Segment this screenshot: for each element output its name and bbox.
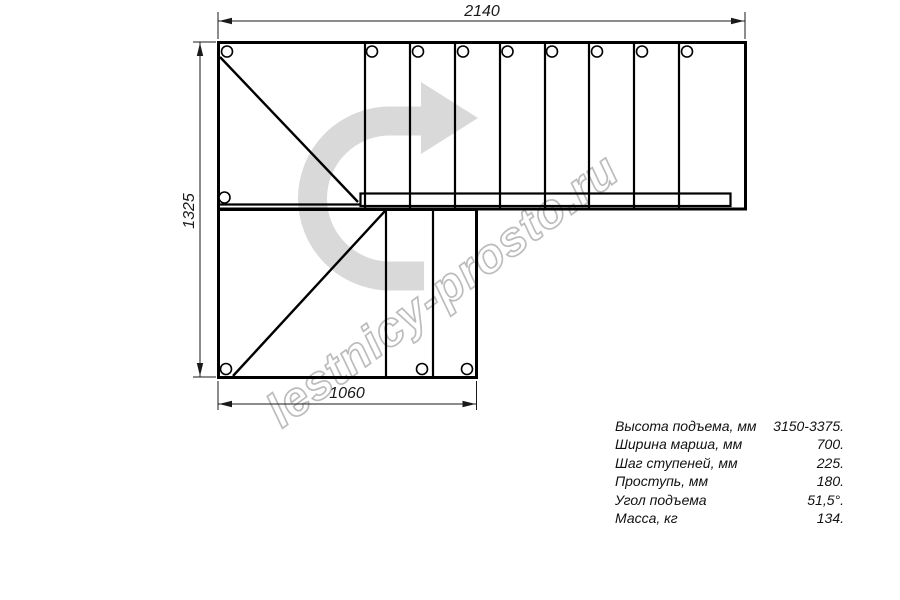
dimension-value-left: 1325 (181, 193, 198, 229)
spec-value: 700. (817, 435, 844, 453)
mounting-hole (222, 46, 233, 57)
arrow-head (421, 82, 478, 154)
arrow-curve (313, 121, 425, 276)
dim-arrowhead (197, 43, 203, 56)
mounting-hole (221, 364, 232, 375)
top-flight-outline (219, 43, 746, 210)
dim-arrowhead (197, 363, 203, 376)
stair-linework (219, 43, 746, 378)
mounting-hole (637, 46, 648, 57)
spec-row-tread: Проступь, мм 180. (615, 472, 844, 490)
mounting-hole (547, 46, 558, 57)
staircase-plan-drawing: lestnicy-prosto.ru (0, 0, 900, 600)
spec-label: Высота подъема, мм (615, 417, 757, 435)
spec-value: 225. (817, 454, 844, 472)
mounting-hole (417, 364, 428, 375)
spec-row-height: Высота подъема, мм 3150-3375. (615, 417, 844, 435)
spec-label: Проступь, мм (615, 472, 708, 490)
spec-label: Шаг ступеней, мм (615, 454, 738, 472)
mounting-hole (413, 46, 424, 57)
spec-label: Ширина марша, мм (615, 435, 742, 453)
mounting-hole (219, 192, 230, 203)
dim-arrowhead (219, 18, 232, 24)
spec-label: Масса, кг (615, 509, 678, 527)
dimension-value-top: 2140 (463, 3, 500, 20)
spec-row-step-pitch: Шаг ступеней, мм 225. (615, 454, 844, 472)
spec-value: 51,5°. (807, 491, 844, 509)
spec-row-flight-width: Ширина марша, мм 700. (615, 435, 844, 453)
dim-arrowhead (219, 401, 232, 407)
mounting-hole (502, 46, 513, 57)
specs-table: Высота подъема, мм 3150-3375. Ширина мар… (615, 417, 844, 527)
mounting-hole (458, 46, 469, 57)
spec-value: 134. (817, 509, 844, 527)
mounting-hole (592, 46, 603, 57)
spec-row-mass: Масса, кг 134. (615, 509, 844, 527)
mounting-hole (462, 364, 473, 375)
mounting-hole (682, 46, 693, 57)
dim-arrowhead (463, 401, 476, 407)
spec-value: 180. (817, 472, 844, 490)
spec-label: Угол подъема (615, 491, 707, 509)
dim-arrowhead (731, 18, 744, 24)
spec-value: 3150-3375. (773, 417, 844, 435)
mounting-hole (367, 46, 378, 57)
dimension-value-bottom: 1060 (329, 385, 365, 402)
spec-row-angle: Угол подъема 51,5°. (615, 491, 844, 509)
